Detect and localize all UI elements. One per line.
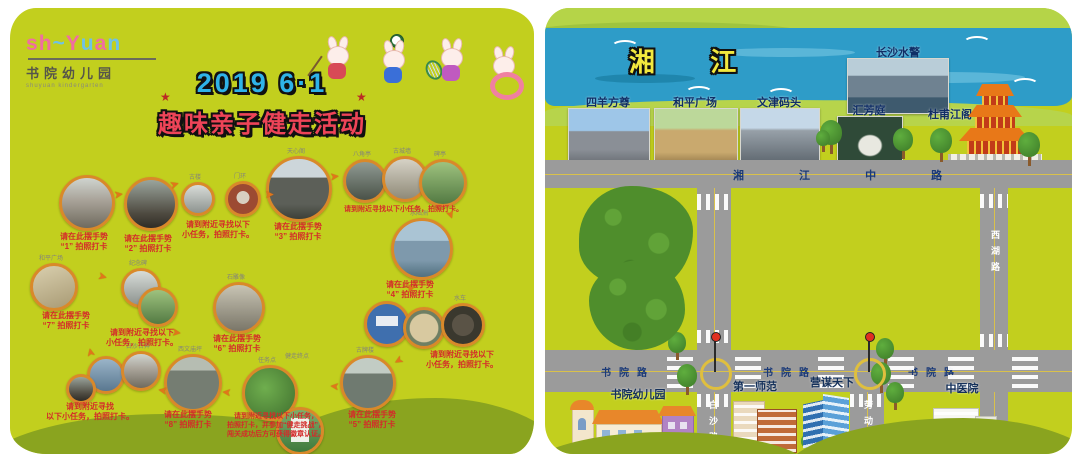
station-photo: [340, 355, 396, 411]
tree-crown: [1018, 132, 1040, 157]
route-arrow: ➤: [329, 170, 340, 184]
tree-crown: [886, 382, 904, 403]
zebra-crossing: [697, 194, 731, 210]
poster-stage: sh~Yuan 书院幼儿园 shuyuan kindergarten 2019 …: [0, 0, 1080, 461]
tree-crown: [876, 338, 894, 359]
first-normal-school-label: 第一师范: [713, 378, 797, 394]
tree-trunk: [676, 353, 679, 360]
tree-trunk: [894, 403, 897, 410]
tree: [816, 130, 830, 152]
traffic-light-icon: [868, 340, 870, 372]
route-arrow: ➤: [221, 386, 231, 400]
station-label: 碑亭: [400, 149, 480, 158]
route-arrow: ➤: [113, 187, 124, 201]
building-roof: [658, 406, 696, 416]
station-photo: [66, 374, 96, 404]
station-photo: [59, 175, 115, 231]
station-photo: [266, 156, 332, 222]
station-label: 和平广场: [11, 253, 91, 262]
tree-trunk: [822, 146, 825, 152]
station-photo: [225, 181, 261, 217]
station-photo: [419, 159, 467, 207]
route-arrow: ➤: [171, 325, 182, 339]
tree-trunk: [902, 151, 905, 159]
route-arrow: ➤: [265, 188, 274, 201]
route-arrow: ➤: [329, 380, 339, 394]
tree: [886, 382, 904, 410]
zebra-crossing: [980, 334, 1008, 347]
tree-trunk: [940, 153, 943, 162]
building-roof: [592, 410, 664, 424]
station-caption: 请到附近寻找以下小任务，拍照打卡。: [84, 328, 200, 349]
station-photo: [30, 263, 78, 311]
station-photo: [343, 159, 387, 203]
building-window: [680, 422, 687, 429]
tree: [930, 128, 952, 162]
building-window: [668, 422, 675, 429]
station-photo: [403, 307, 445, 349]
station-caption: 请到附近寻找以下小任务，拍照打卡。: [404, 350, 520, 371]
route-arrow: ➤: [83, 347, 98, 359]
station-photo: [181, 182, 215, 216]
right-map-panel: 湘 江 长沙水警 四羊方尊和平广场文津码头汇芳庭 杜甫江阁 湘 江 中 路 书院…: [545, 8, 1072, 454]
station-photo: [441, 303, 485, 347]
building-dome-roof: [570, 400, 594, 410]
zebra-crossing: [850, 394, 884, 407]
station-photo: [391, 218, 453, 280]
traffic-light-icon: [714, 340, 716, 372]
station-caption: 请在此摆手势“3” 拍照打卡: [240, 222, 356, 243]
tree-trunk: [1028, 157, 1031, 166]
station-label: 纪念碑: [98, 258, 178, 267]
station-caption: 请到附近寻找以下小任务，拍照打卡，并参加“健走挑战”，闯关成功后方可获得徽章认证…: [218, 412, 334, 439]
station-photo: [138, 287, 178, 327]
zebra-crossing: [980, 194, 1008, 208]
tree-crown: [677, 364, 697, 387]
zebra-crossing: [697, 394, 731, 407]
station-photo: [213, 282, 265, 334]
station-label: 古牌楼: [325, 345, 405, 354]
route-arrow: ➤: [96, 269, 108, 284]
tree-trunk: [686, 387, 689, 395]
station-photo: [121, 351, 161, 391]
tree: [1018, 132, 1040, 166]
hospital-label: 中医院: [927, 380, 997, 396]
tree-crown: [893, 128, 913, 151]
station-photo: [164, 354, 222, 412]
zebra-crossing: [1012, 354, 1038, 388]
left-poster-panel: sh~Yuan 书院幼儿园 shuyuan kindergarten 2019 …: [10, 8, 534, 454]
bush-area: [589, 260, 685, 350]
tree-crown: [816, 130, 830, 146]
tree-crown: [930, 128, 952, 153]
station-label: 石雕像: [196, 272, 276, 281]
tree: [893, 128, 913, 159]
building-window: [578, 418, 586, 430]
route-layer: 古楼门环天心阁八角亭古城墙碑亭水陆洲水车古牌楼石雕像和平广场纪念碑白沙古井西文庙…: [10, 8, 534, 454]
